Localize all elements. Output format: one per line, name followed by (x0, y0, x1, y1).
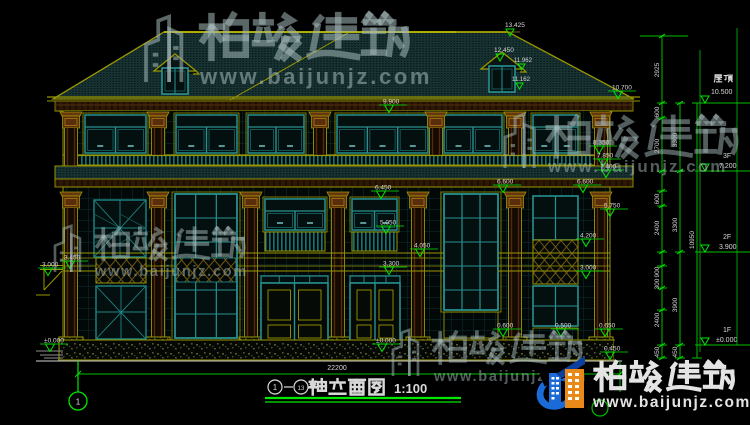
svg-text:450: 450 (654, 346, 661, 357)
svg-text:3.900: 3.900 (719, 244, 737, 251)
svg-text:0.650: 0.650 (599, 323, 616, 330)
svg-text:3.300: 3.300 (383, 261, 400, 268)
svg-text:13: 13 (298, 386, 305, 392)
svg-text:1: 1 (76, 397, 81, 407)
svg-text:6.600: 6.600 (577, 179, 594, 186)
svg-text:±0.000: ±0.000 (44, 338, 64, 345)
svg-text:10950: 10950 (689, 231, 696, 249)
svg-text:600: 600 (654, 193, 661, 204)
svg-text:1: 1 (273, 383, 278, 392)
svg-text:1:100: 1:100 (394, 381, 427, 396)
svg-text:±0.000: ±0.000 (376, 338, 396, 345)
svg-text:±0.000: ±0.000 (716, 337, 737, 344)
svg-text:2400: 2400 (654, 220, 661, 235)
svg-text:3900: 3900 (672, 297, 679, 312)
svg-text:900: 900 (654, 266, 661, 277)
svg-text:4.200: 4.200 (580, 233, 597, 240)
svg-text:12.450: 12.450 (494, 47, 514, 54)
svg-text:600: 600 (654, 106, 661, 117)
svg-text:3.000: 3.000 (580, 265, 597, 272)
svg-text:11.162: 11.162 (512, 77, 531, 83)
svg-text:2F: 2F (723, 234, 731, 241)
svg-text:10.700: 10.700 (612, 85, 632, 92)
svg-text:1F: 1F (723, 327, 731, 334)
svg-text:6.600: 6.600 (497, 179, 514, 186)
svg-text:3300: 3300 (672, 217, 679, 232)
svg-text:5.750: 5.750 (604, 203, 621, 210)
svg-text:10.500: 10.500 (711, 89, 733, 96)
svg-text:6.450: 6.450 (375, 185, 392, 192)
svg-text:2925: 2925 (654, 62, 661, 77)
svg-text:13.425: 13.425 (505, 22, 525, 29)
svg-text:0.500: 0.500 (555, 323, 572, 330)
svg-text:9.900: 9.900 (383, 99, 400, 106)
svg-text:www.baijunjz.com: www.baijunjz.com (199, 64, 432, 89)
svg-text:2400: 2400 (654, 312, 661, 327)
svg-text:0.600: 0.600 (497, 323, 514, 330)
svg-text:450: 450 (672, 346, 679, 357)
svg-text:22200: 22200 (327, 365, 347, 372)
svg-text:300: 300 (654, 278, 661, 289)
svg-text:www.baijunjz.com: www.baijunjz.com (547, 157, 727, 176)
svg-text:www.baijunjz.com: www.baijunjz.com (592, 394, 750, 411)
svg-text:11.962: 11.962 (514, 58, 533, 64)
svg-text:4.050: 4.050 (414, 243, 431, 250)
svg-text:0.450: 0.450 (604, 346, 621, 353)
svg-text:5.050: 5.050 (380, 220, 397, 227)
svg-text:www.baijunjz.com: www.baijunjz.com (94, 264, 248, 280)
